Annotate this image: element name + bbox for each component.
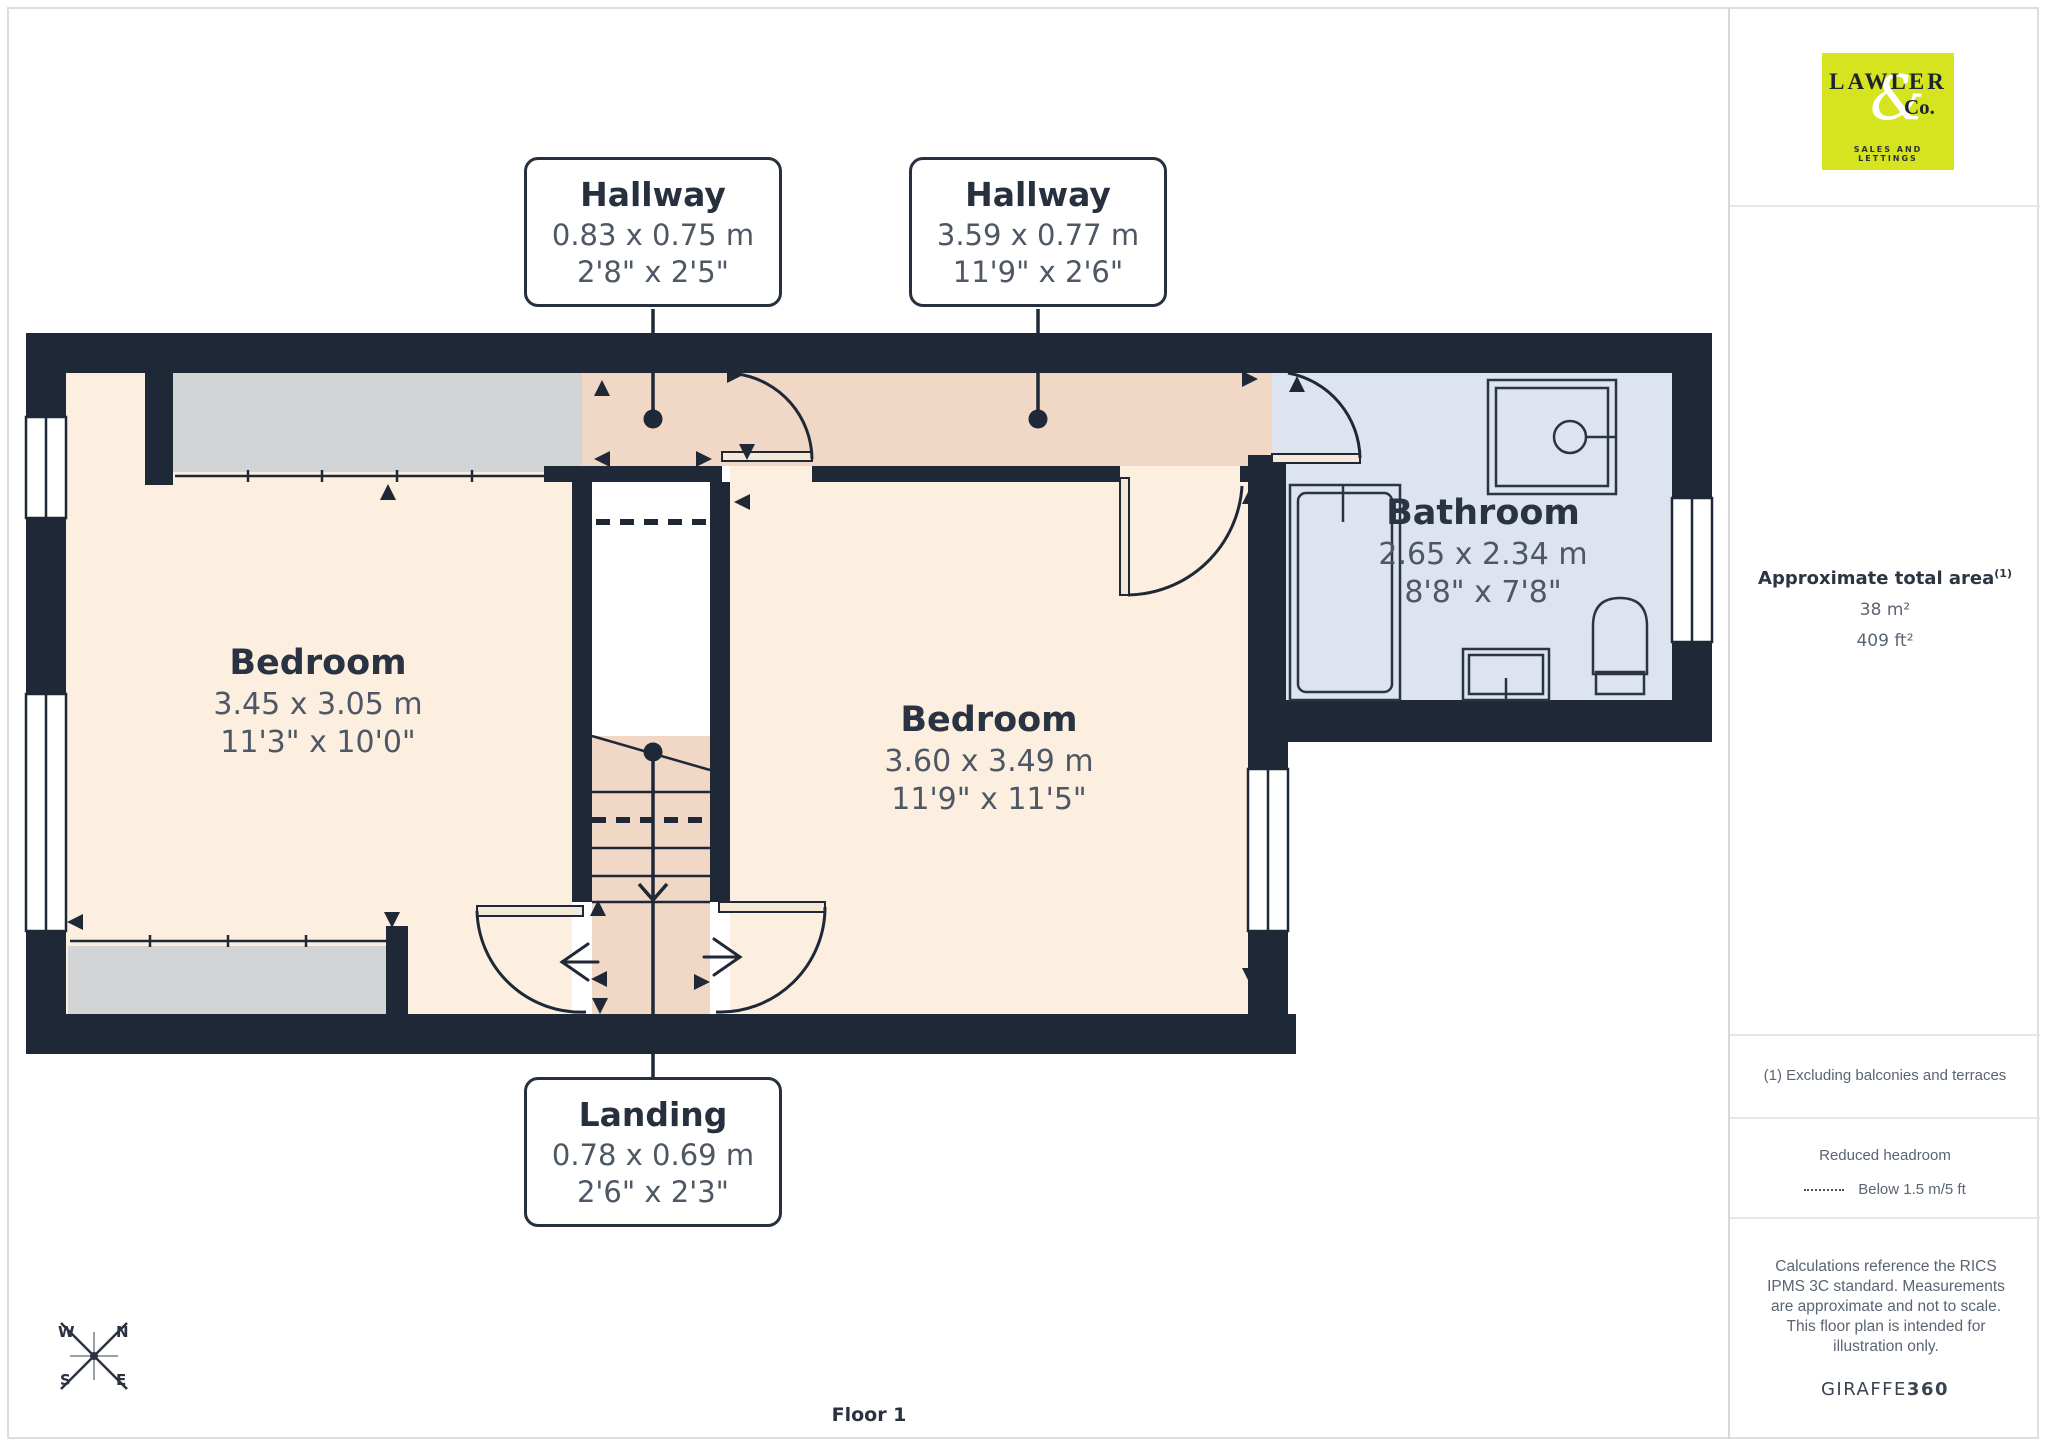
sidebar-divider	[1730, 1117, 2040, 1119]
area-footnote: (1) Excluding balconies and terraces	[1730, 1067, 2040, 1084]
total-area-title: Approximate total area(1)	[1730, 567, 2040, 589]
compass-west: W	[58, 1323, 75, 1341]
wall-hallway-south-b	[812, 466, 1120, 482]
compass-north: N	[116, 1323, 129, 1341]
logo-tagline: SALES AND LETTINGS	[1822, 145, 1954, 163]
wall-stub-wardrobe-top	[145, 333, 173, 485]
logo-name: LAWLER	[1822, 69, 1954, 95]
wall-stub-wardrobe-bottom	[386, 926, 408, 1014]
door-leaf-landing-left	[477, 906, 583, 916]
compass-rose	[40, 1310, 150, 1405]
leader-dot-landing	[644, 743, 663, 762]
reduced-headroom-legend: Reduced headroom Below 1.5 m/5 ft	[1730, 1147, 2040, 1198]
total-area-imperial: 409 ft²	[1730, 631, 2040, 651]
giraffe360-brand: GIRAFFE360	[1730, 1379, 2040, 1400]
callout-imperial: 2'8" x 2'5"	[577, 254, 729, 291]
callout-name: Hallway	[965, 173, 1111, 217]
wardrobe-bottom	[68, 946, 386, 1014]
door-leaf-bathroom	[1272, 454, 1360, 463]
compass-south: S	[60, 1371, 71, 1389]
callout-imperial: 11'9" x 2'6"	[953, 254, 1123, 291]
callout-hallway-1: Hallway 0.83 x 0.75 m 2'8" x 2'5"	[524, 157, 782, 307]
callout-name: Landing	[579, 1093, 728, 1137]
wall-stairwell-east	[710, 482, 730, 902]
wardrobe-top	[173, 373, 582, 472]
callout-imperial: 2'6" x 2'3"	[577, 1174, 729, 1211]
callout-metric: 0.83 x 0.75 m	[552, 217, 754, 254]
sidebar-divider	[1730, 1034, 2040, 1036]
door-leaf-hallway1	[722, 452, 812, 461]
leader-dot-hallway2	[1029, 410, 1048, 429]
total-area-title-text: Approximate total area	[1758, 568, 1994, 589]
dotted-line-swatch	[1804, 1189, 1844, 1191]
legend-label: Below 1.5 m/5 ft	[1858, 1181, 1966, 1198]
door-leaf-landing-right	[719, 902, 825, 912]
sidebar-divider	[1730, 1217, 2040, 1219]
door-leaf-bedroom2	[1120, 478, 1129, 595]
bedroom-2-floor	[730, 466, 1248, 1014]
brand-name: GIRAFFE	[1821, 1379, 1907, 1400]
floorplan-page: Bedroom 3.45 x 3.05 m 11'3" x 10'0" Bedr…	[0, 0, 2048, 1448]
hallway-floor	[582, 373, 1272, 466]
total-area-metric: 38 m²	[1730, 600, 2040, 620]
bathroom-floor	[1272, 373, 1672, 702]
legend-title: Reduced headroom	[1730, 1147, 2040, 1164]
callout-landing: Landing 0.78 x 0.69 m 2'6" x 2'3"	[524, 1077, 782, 1227]
total-area-superscript: (1)	[1994, 567, 2012, 580]
disclaimer-text: Calculations reference the RICS IPMS 3C …	[1766, 1257, 2006, 1357]
callout-metric: 0.78 x 0.69 m	[552, 1137, 754, 1174]
wall-top	[26, 333, 1712, 373]
leader-dot-hallway1	[644, 410, 663, 429]
callout-metric: 3.59 x 0.77 m	[937, 217, 1139, 254]
legend-row: Below 1.5 m/5 ft	[1730, 1181, 2040, 1198]
wall-hallway-south-a	[544, 466, 722, 482]
wall-bathroom-south	[1248, 700, 1712, 742]
wall-stairwell-west	[572, 482, 592, 902]
sidebar: & LAWLER Co. SALES AND LETTINGS Approxim…	[1728, 7, 2040, 1439]
callout-name: Hallway	[580, 173, 726, 217]
logo-co: Co.	[1904, 95, 1935, 120]
brand-suffix: 360	[1907, 1379, 1949, 1400]
compass-east: E	[116, 1371, 126, 1389]
wall-bottom	[26, 1014, 1296, 1054]
total-area-block: Approximate total area(1) 38 m² 409 ft²	[1730, 567, 2040, 651]
wall-bathroom-west	[1248, 455, 1286, 700]
compass-icon: W N S E	[40, 1310, 150, 1405]
callout-hallway-2: Hallway 3.59 x 0.77 m 11'9" x 2'6"	[909, 157, 1167, 307]
agency-logo: & LAWLER Co. SALES AND LETTINGS	[1822, 53, 1954, 170]
floor-label: Floor 1	[769, 1404, 969, 1426]
sidebar-divider	[1730, 205, 2040, 207]
